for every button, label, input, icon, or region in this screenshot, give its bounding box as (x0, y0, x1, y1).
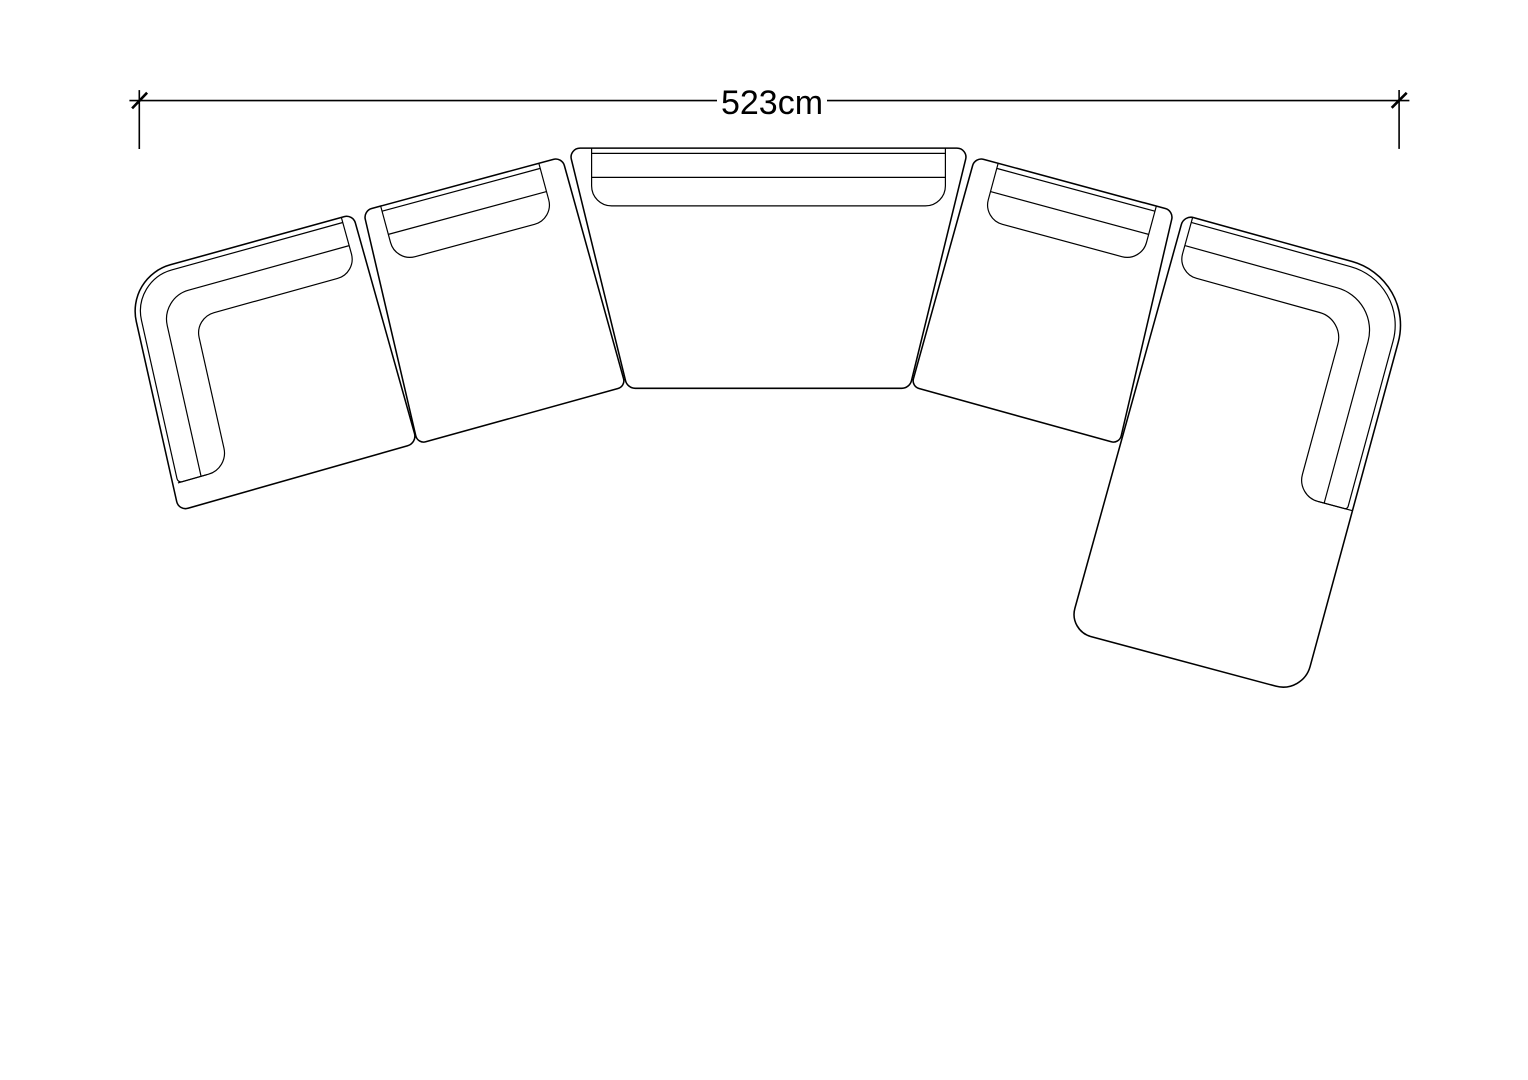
svg-text:523cm: 523cm (721, 84, 823, 122)
